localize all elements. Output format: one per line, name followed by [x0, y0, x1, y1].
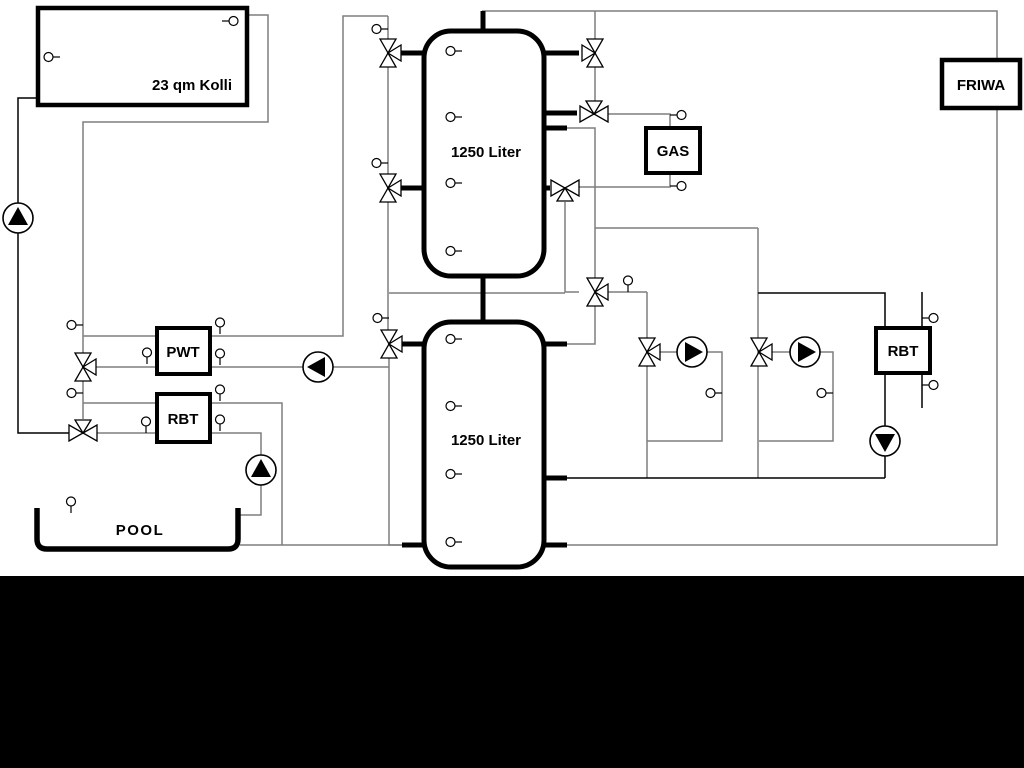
footer-black-bar — [0, 576, 1024, 768]
three-way-valve-circuit1 — [639, 338, 660, 366]
sensor-riser-mid — [372, 159, 388, 168]
rbt-left-label: RBT — [168, 411, 199, 428]
sensor-rbt-right-bottom — [216, 415, 225, 431]
tank-lower-label: 1250 Liter — [451, 432, 521, 449]
three-way-valve-tank-left-mid — [380, 174, 401, 202]
gas-boiler-label: GAS — [657, 143, 690, 160]
hydraulic-schematic: 23 qm Kolli 1250 Liter 1250 Liter PWT RB… — [0, 0, 1024, 768]
sensor-pwt-right-top — [216, 318, 225, 334]
pipe-rbt-right-supply — [758, 293, 885, 328]
sensor-gas-return — [670, 182, 686, 191]
pipe-valve9-to-tank — [567, 306, 595, 344]
pwt-label: PWT — [166, 344, 199, 361]
solar-pump — [3, 203, 33, 233]
sensor-pool — [67, 497, 76, 513]
pwt-charge-pump — [303, 352, 333, 382]
sensor-riser-low — [373, 314, 389, 323]
solar-collector-label: 23 qm Kolli — [152, 77, 232, 94]
sensor-rbt-right-return — [922, 381, 938, 390]
pipe-gas-supply — [608, 114, 670, 128]
sensor-riser-top — [372, 25, 388, 34]
three-way-valve-tank-right-top — [582, 39, 603, 67]
sensor-rbt-right-top — [216, 385, 225, 401]
three-way-valve-tank-left-top — [380, 39, 401, 67]
three-way-valve-circuit2 — [751, 338, 772, 366]
circuit2-pump — [790, 337, 820, 367]
tank-upper-label: 1250 Liter — [451, 144, 521, 161]
circuit1-pump — [677, 337, 707, 367]
pipe-tank-right-mid-riser — [567, 128, 595, 278]
sensor-pwt-left — [143, 348, 152, 364]
three-way-valve-solar-pwt — [75, 353, 96, 381]
sensor-pwt-right-bottom — [216, 349, 225, 365]
sensor-gas-supply — [670, 111, 686, 120]
pipe-top-header-friwa-return — [482, 11, 997, 545]
sensor-solar-return-top — [67, 321, 83, 330]
sensor-rbt-right-supply — [922, 314, 938, 323]
pipe-gas-return — [579, 173, 670, 187]
pool-pump — [246, 455, 276, 485]
sensor-distribution — [624, 276, 633, 292]
pipe-valve8-down — [565, 202, 579, 292]
sensor-solar-return-low — [67, 389, 83, 398]
three-way-valve-solar-rbt — [69, 420, 97, 441]
sensor-circuit2 — [817, 389, 833, 398]
pipe-circuit1-riser — [608, 292, 647, 478]
pipe-left-riser-bottom — [389, 358, 402, 545]
friwa-label: FRIWA — [957, 77, 1005, 94]
rbt-right-pump — [870, 426, 900, 456]
pool-label: POOL — [116, 522, 165, 539]
three-way-valve-gas-return — [551, 180, 579, 201]
rbt-right-label: RBT — [888, 343, 919, 360]
sensor-circuit1 — [706, 389, 722, 398]
three-way-valve-distribution — [587, 278, 608, 306]
sensor-rbt-left-in — [142, 417, 151, 433]
three-way-valve-tank-left-low — [381, 330, 402, 358]
pipe-solar-supply — [18, 98, 69, 433]
three-way-valve-gas-supply — [580, 101, 608, 122]
